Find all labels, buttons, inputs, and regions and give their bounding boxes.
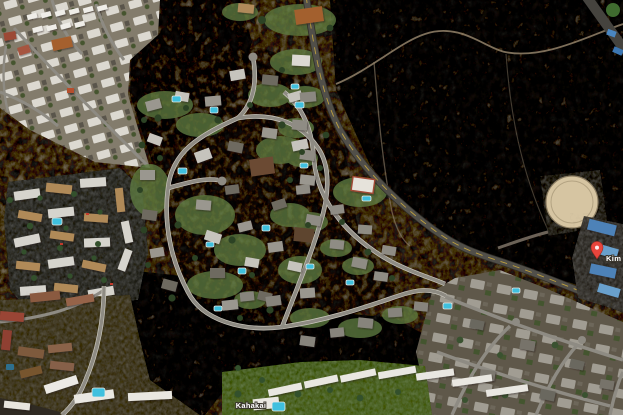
tree-icon xyxy=(606,3,620,17)
poi-label: Kim C xyxy=(606,254,623,263)
apartment-complex xyxy=(4,168,148,312)
road-label-kahakai: Kahakai xyxy=(236,401,266,410)
satellite-map-view[interactable]: Kahakai Kim C xyxy=(0,0,623,415)
